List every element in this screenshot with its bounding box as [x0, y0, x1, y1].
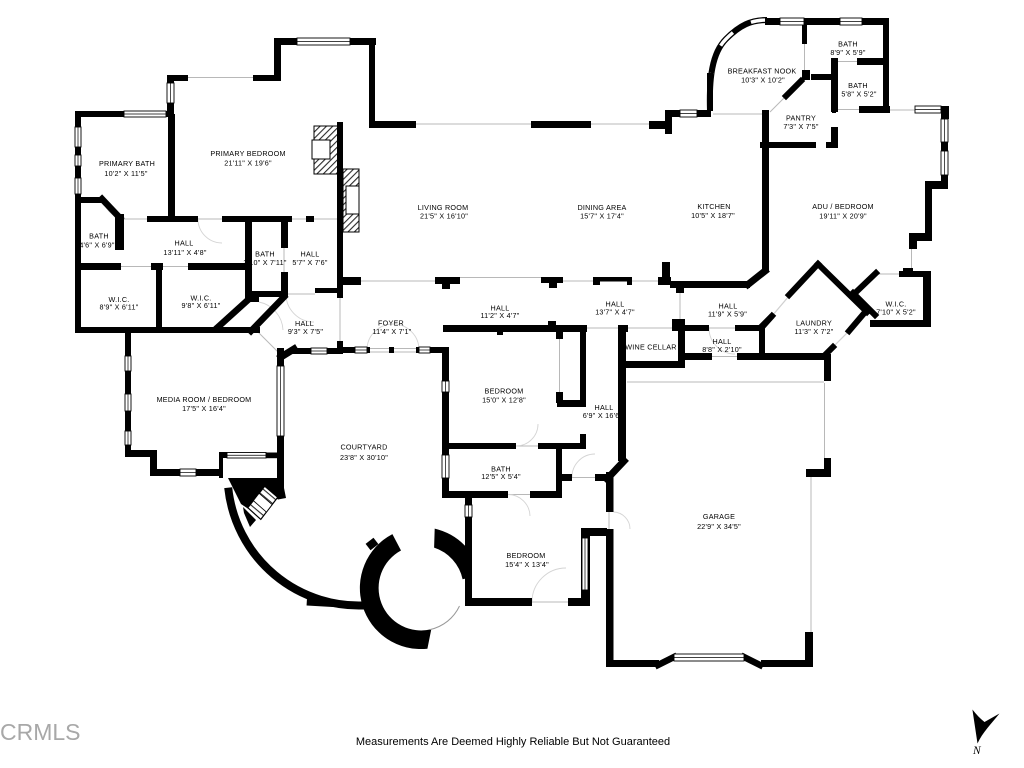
- svg-text:3'10" X 7'11": 3'10" X 7'11": [243, 258, 287, 267]
- svg-text:11'3" X 7'2": 11'3" X 7'2": [794, 327, 833, 336]
- svg-text:PRIMARY BATH: PRIMARY BATH: [99, 159, 155, 168]
- svg-text:15'0" X 12'8": 15'0" X 12'8": [482, 396, 526, 405]
- svg-text:CRMLS: CRMLS: [0, 719, 81, 745]
- svg-text:15'7" X 17'4": 15'7" X 17'4": [580, 212, 624, 221]
- svg-text:BEDROOM: BEDROOM: [507, 551, 546, 560]
- svg-text:ADU / BEDROOM: ADU / BEDROOM: [812, 202, 874, 211]
- svg-text:BREAKFAST NOOK: BREAKFAST NOOK: [728, 67, 797, 76]
- svg-text:7'10" X 5'2": 7'10" X 5'2": [876, 308, 916, 317]
- svg-text:15'4" X 13'4": 15'4" X 13'4": [505, 560, 549, 569]
- svg-text:BEDROOM: BEDROOM: [485, 387, 524, 396]
- svg-text:8'8" X 2'10": 8'8" X 2'10": [702, 345, 742, 354]
- svg-text:12'5" X 5'4": 12'5" X 5'4": [481, 472, 521, 481]
- svg-text:8'9" X 6'11": 8'9" X 6'11": [99, 303, 138, 312]
- svg-text:BATH: BATH: [89, 232, 109, 241]
- svg-text:COURTYARD: COURTYARD: [340, 443, 387, 452]
- svg-text:5'8" X 5'2": 5'8" X 5'2": [841, 90, 877, 99]
- svg-text:11'4" X 7'1": 11'4" X 7'1": [372, 327, 411, 336]
- svg-text:22'9" X 34'5": 22'9" X 34'5": [697, 522, 741, 531]
- svg-text:21'5" X 16'10": 21'5" X 16'10": [420, 212, 468, 221]
- svg-text:9'3" X 7'5": 9'3" X 7'5": [288, 327, 324, 336]
- svg-text:Measurements Are Deemed Highly: Measurements Are Deemed Highly Reliable …: [356, 736, 670, 748]
- svg-text:6'9" X 16'6": 6'9" X 16'6": [583, 411, 623, 420]
- svg-text:13'11" X 4'8": 13'11" X 4'8": [163, 248, 207, 257]
- svg-text:11'2" X 4'7": 11'2" X 4'7": [480, 311, 519, 320]
- svg-text:21'11" X 19'6": 21'11" X 19'6": [224, 159, 272, 168]
- svg-text:13'7" X 4'7": 13'7" X 4'7": [595, 308, 635, 317]
- svg-text:10'3" X 10'2": 10'3" X 10'2": [741, 76, 785, 85]
- svg-text:10'2" X 11'5": 10'2" X 11'5": [104, 169, 148, 178]
- svg-text:KITCHEN: KITCHEN: [697, 202, 730, 211]
- svg-text:WINE CELLAR: WINE CELLAR: [625, 343, 676, 352]
- svg-text:8'9" X 5'9": 8'9" X 5'9": [830, 48, 866, 57]
- svg-text:10'5" X 18'7": 10'5" X 18'7": [691, 211, 735, 220]
- svg-text:5'7" X 7'6": 5'7" X 7'6": [292, 258, 328, 267]
- svg-text:N: N: [972, 745, 982, 757]
- svg-text:4'6" X 6'9": 4'6" X 6'9": [79, 241, 115, 250]
- svg-text:17'5" X 16'4": 17'5" X 16'4": [182, 404, 226, 413]
- svg-text:19'11" X 20'9": 19'11" X 20'9": [819, 212, 867, 221]
- svg-text:23'8" X 30'10": 23'8" X 30'10": [340, 453, 388, 462]
- svg-text:MEDIA ROOM / BEDROOM: MEDIA ROOM / BEDROOM: [157, 395, 252, 404]
- svg-text:7'3" X 7'5": 7'3" X 7'5": [783, 122, 819, 131]
- svg-text:PRIMARY BEDROOM: PRIMARY BEDROOM: [210, 149, 285, 158]
- svg-text:HALL: HALL: [175, 239, 194, 248]
- svg-text:9'8" X 6'11": 9'8" X 6'11": [181, 301, 220, 310]
- svg-text:11'9" X 5'9": 11'9" X 5'9": [708, 310, 747, 319]
- svg-text:GARAGE: GARAGE: [703, 512, 735, 521]
